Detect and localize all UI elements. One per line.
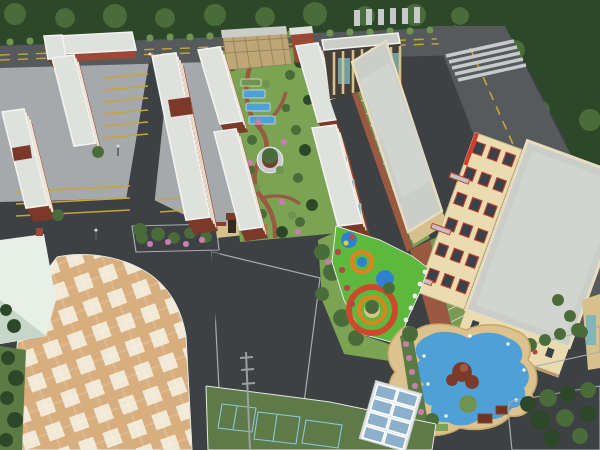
blossom-shrub: [165, 239, 171, 245]
blossom-shrub: [339, 267, 345, 273]
tree: [7, 39, 14, 46]
tree: [55, 8, 75, 28]
play-equipment: [350, 235, 355, 240]
blossom-shrub: [295, 229, 301, 235]
apartment-roof: [58, 32, 136, 54]
tree: [276, 166, 284, 174]
site-plan-rendering: [0, 0, 600, 450]
tree: [187, 34, 194, 41]
tree: [299, 144, 311, 156]
tree: [554, 328, 566, 340]
play-equipment: [344, 241, 349, 246]
tree: [539, 389, 557, 407]
blossom-shrub: [199, 237, 205, 243]
curb-scallop: [423, 270, 428, 275]
curb-scallop: [413, 294, 418, 299]
zebra-stripe: [390, 8, 396, 24]
tree: [543, 429, 561, 447]
tree: [288, 211, 296, 219]
tree: [247, 135, 257, 145]
tree: [291, 125, 301, 135]
zebra-stripe: [402, 8, 408, 24]
play-circle-equipment: [341, 232, 357, 248]
tree: [27, 38, 34, 45]
plaza-center-tree: [262, 148, 278, 164]
zebra-stripe: [366, 9, 372, 25]
blossom-shrub: [335, 249, 341, 255]
tree: [285, 70, 295, 80]
lamp-head: [94, 228, 97, 231]
tree: [255, 7, 275, 27]
gate-arch: [228, 220, 236, 233]
tree: [4, 3, 26, 25]
curb-scallop: [418, 282, 423, 287]
blossom-shrub: [533, 350, 538, 355]
rockery-highlight: [460, 364, 468, 372]
blossom-shrub: [403, 341, 409, 347]
curb-scallop: [404, 318, 409, 323]
blossom-shrub: [255, 119, 261, 125]
fountain-jet: [426, 382, 430, 386]
blossom-shrub: [409, 369, 415, 375]
blossom-shrub: [344, 285, 350, 291]
tree: [576, 326, 588, 338]
tree: [52, 209, 64, 221]
tree: [1, 351, 15, 365]
zebra-stripe: [414, 7, 420, 23]
tree: [303, 2, 327, 26]
tree: [167, 34, 174, 41]
tree: [0, 304, 12, 316]
lamp-head: [116, 144, 119, 147]
tree: [451, 7, 469, 25]
tree: [92, 146, 104, 158]
tree: [552, 294, 564, 306]
tree: [365, 300, 379, 314]
tree: [564, 310, 576, 322]
blossom-shrub: [147, 241, 153, 247]
zebra-stripe: [354, 10, 360, 26]
tree: [367, 29, 374, 36]
tree: [427, 27, 434, 34]
tree: [293, 173, 303, 183]
tree: [327, 30, 334, 37]
tree: [8, 370, 24, 386]
blossom-shrub: [281, 139, 287, 145]
tree: [383, 282, 395, 294]
tree: [315, 287, 329, 301]
tree: [560, 386, 576, 402]
tree: [407, 28, 414, 35]
tree: [262, 80, 270, 88]
planting-plot-green: [241, 79, 261, 86]
rendering-canvas: [0, 0, 600, 450]
blossom-shrub: [412, 383, 418, 389]
zebra-stripe: [378, 9, 384, 25]
tree: [7, 412, 23, 428]
blossom-shrub: [325, 259, 331, 265]
tree: [295, 217, 305, 227]
tree: [151, 227, 165, 241]
tree: [204, 4, 226, 26]
tree: [155, 8, 175, 28]
tree: [572, 428, 588, 444]
gate-side-roof: [216, 222, 226, 226]
tree: [347, 29, 354, 36]
tree: [402, 326, 418, 342]
planting-plot-blue: [246, 103, 270, 111]
planting-plot-blue: [249, 116, 275, 124]
stair-tower: [168, 97, 193, 117]
rockery-pavilion: [446, 374, 458, 386]
fountain-jet: [522, 368, 526, 372]
blossom-shrub: [183, 241, 189, 247]
lamp-head: [148, 52, 151, 55]
tree: [306, 199, 318, 211]
tree: [580, 382, 596, 398]
fountain-jet: [468, 334, 472, 338]
blossom-shrub: [349, 301, 355, 307]
tree: [103, 4, 127, 28]
tree: [282, 104, 290, 112]
tree: [314, 244, 330, 260]
curb-scallop: [409, 306, 414, 311]
tree: [579, 109, 600, 131]
tree: [539, 334, 551, 346]
tree: [147, 35, 154, 42]
tree: [276, 226, 288, 238]
fountain-jet: [422, 354, 426, 358]
tree: [133, 223, 147, 237]
fountain-jet: [444, 414, 448, 418]
tree: [0, 391, 14, 405]
planter-box: [478, 414, 492, 423]
tree: [530, 410, 550, 430]
play-circle-blue: [357, 257, 367, 267]
apartment-roof: [44, 35, 66, 59]
tree: [7, 319, 21, 333]
blossom-shrub: [406, 355, 412, 361]
tree: [520, 396, 536, 412]
tree: [556, 409, 574, 427]
blossom-shrub: [279, 199, 285, 205]
fountain-jet: [506, 342, 510, 346]
tree: [459, 395, 477, 413]
blossom-shrub: [418, 409, 424, 415]
planting-plot-blue: [243, 90, 265, 98]
tree: [207, 33, 214, 40]
rockery-pavilion: [465, 375, 479, 389]
tree: [580, 406, 596, 422]
planter-box: [496, 406, 508, 414]
white-building-rooftop-box: [36, 228, 43, 236]
